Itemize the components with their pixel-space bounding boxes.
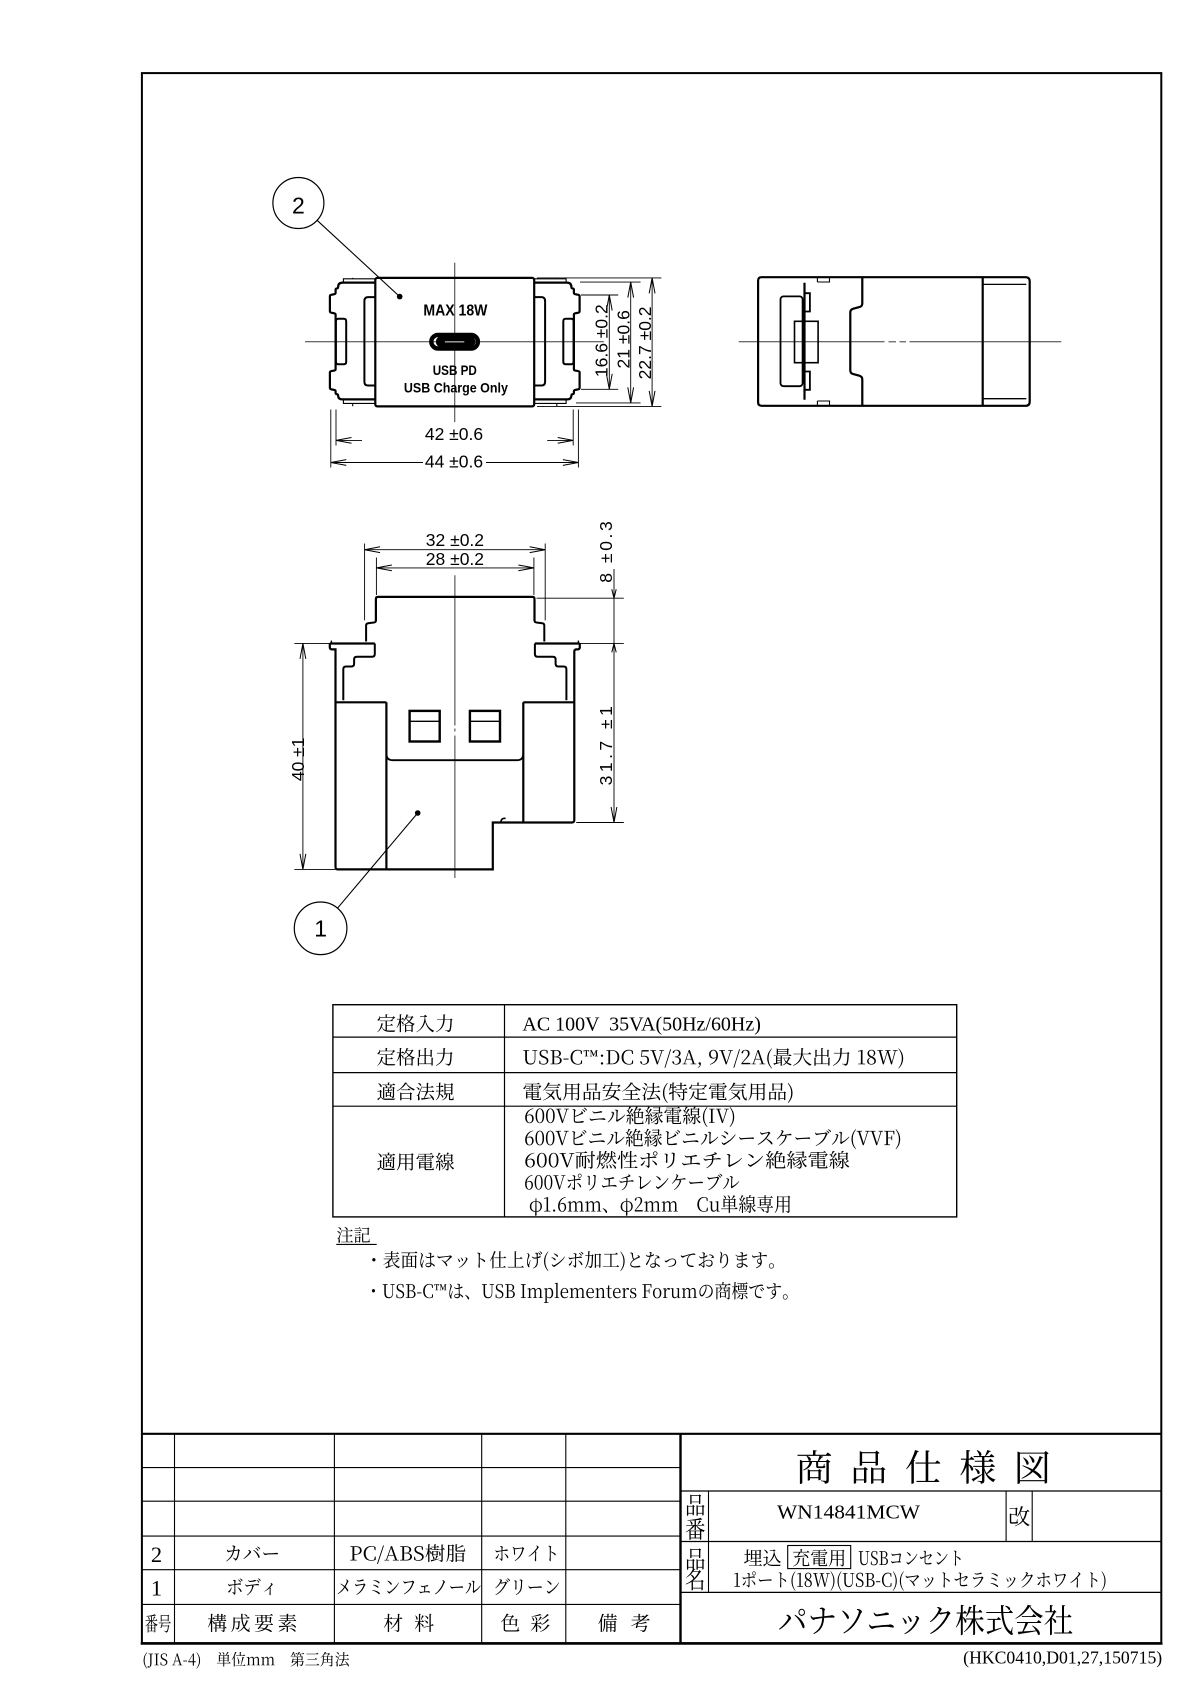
svg-text:22.7 ±0.2: 22.7 ±0.2: [635, 306, 655, 379]
svg-text:USB Charge Only: USB Charge Only: [404, 380, 508, 396]
svg-text:32 ±0.2: 32 ±0.2: [426, 530, 484, 550]
svg-text:(HKC0410,D01,27,150715): (HKC0410,D01,27,150715): [963, 1647, 1162, 1667]
svg-text:2: 2: [292, 192, 305, 218]
svg-text:42 ±0.6: 42 ±0.6: [425, 424, 483, 444]
svg-text:28 ±0.2: 28 ±0.2: [426, 549, 484, 569]
svg-text:MAX 18W: MAX 18W: [423, 303, 488, 320]
svg-text:8 ±0.3: 8 ±0.3: [596, 519, 616, 583]
svg-text:1: 1: [314, 916, 327, 942]
svg-text:AC 100V 35VA(50Hz/60Hz): AC 100V 35VA(50Hz/60Hz): [522, 1015, 761, 1036]
svg-text:2: 2: [151, 1542, 162, 1567]
svg-text:1: 1: [151, 1576, 162, 1601]
svg-text:21 ±0.6: 21 ±0.6: [614, 310, 634, 368]
svg-text:44 ±0.6: 44 ±0.6: [425, 451, 483, 471]
svg-text:40 ±1: 40 ±1: [288, 737, 308, 781]
svg-text:31.7 ±1: 31.7 ±1: [596, 703, 616, 786]
svg-text:USB PD: USB PD: [433, 363, 477, 378]
svg-text:WN14841MCW: WN14841MCW: [777, 1502, 921, 1524]
svg-text:16.6 ±0.2: 16.6 ±0.2: [592, 304, 612, 377]
